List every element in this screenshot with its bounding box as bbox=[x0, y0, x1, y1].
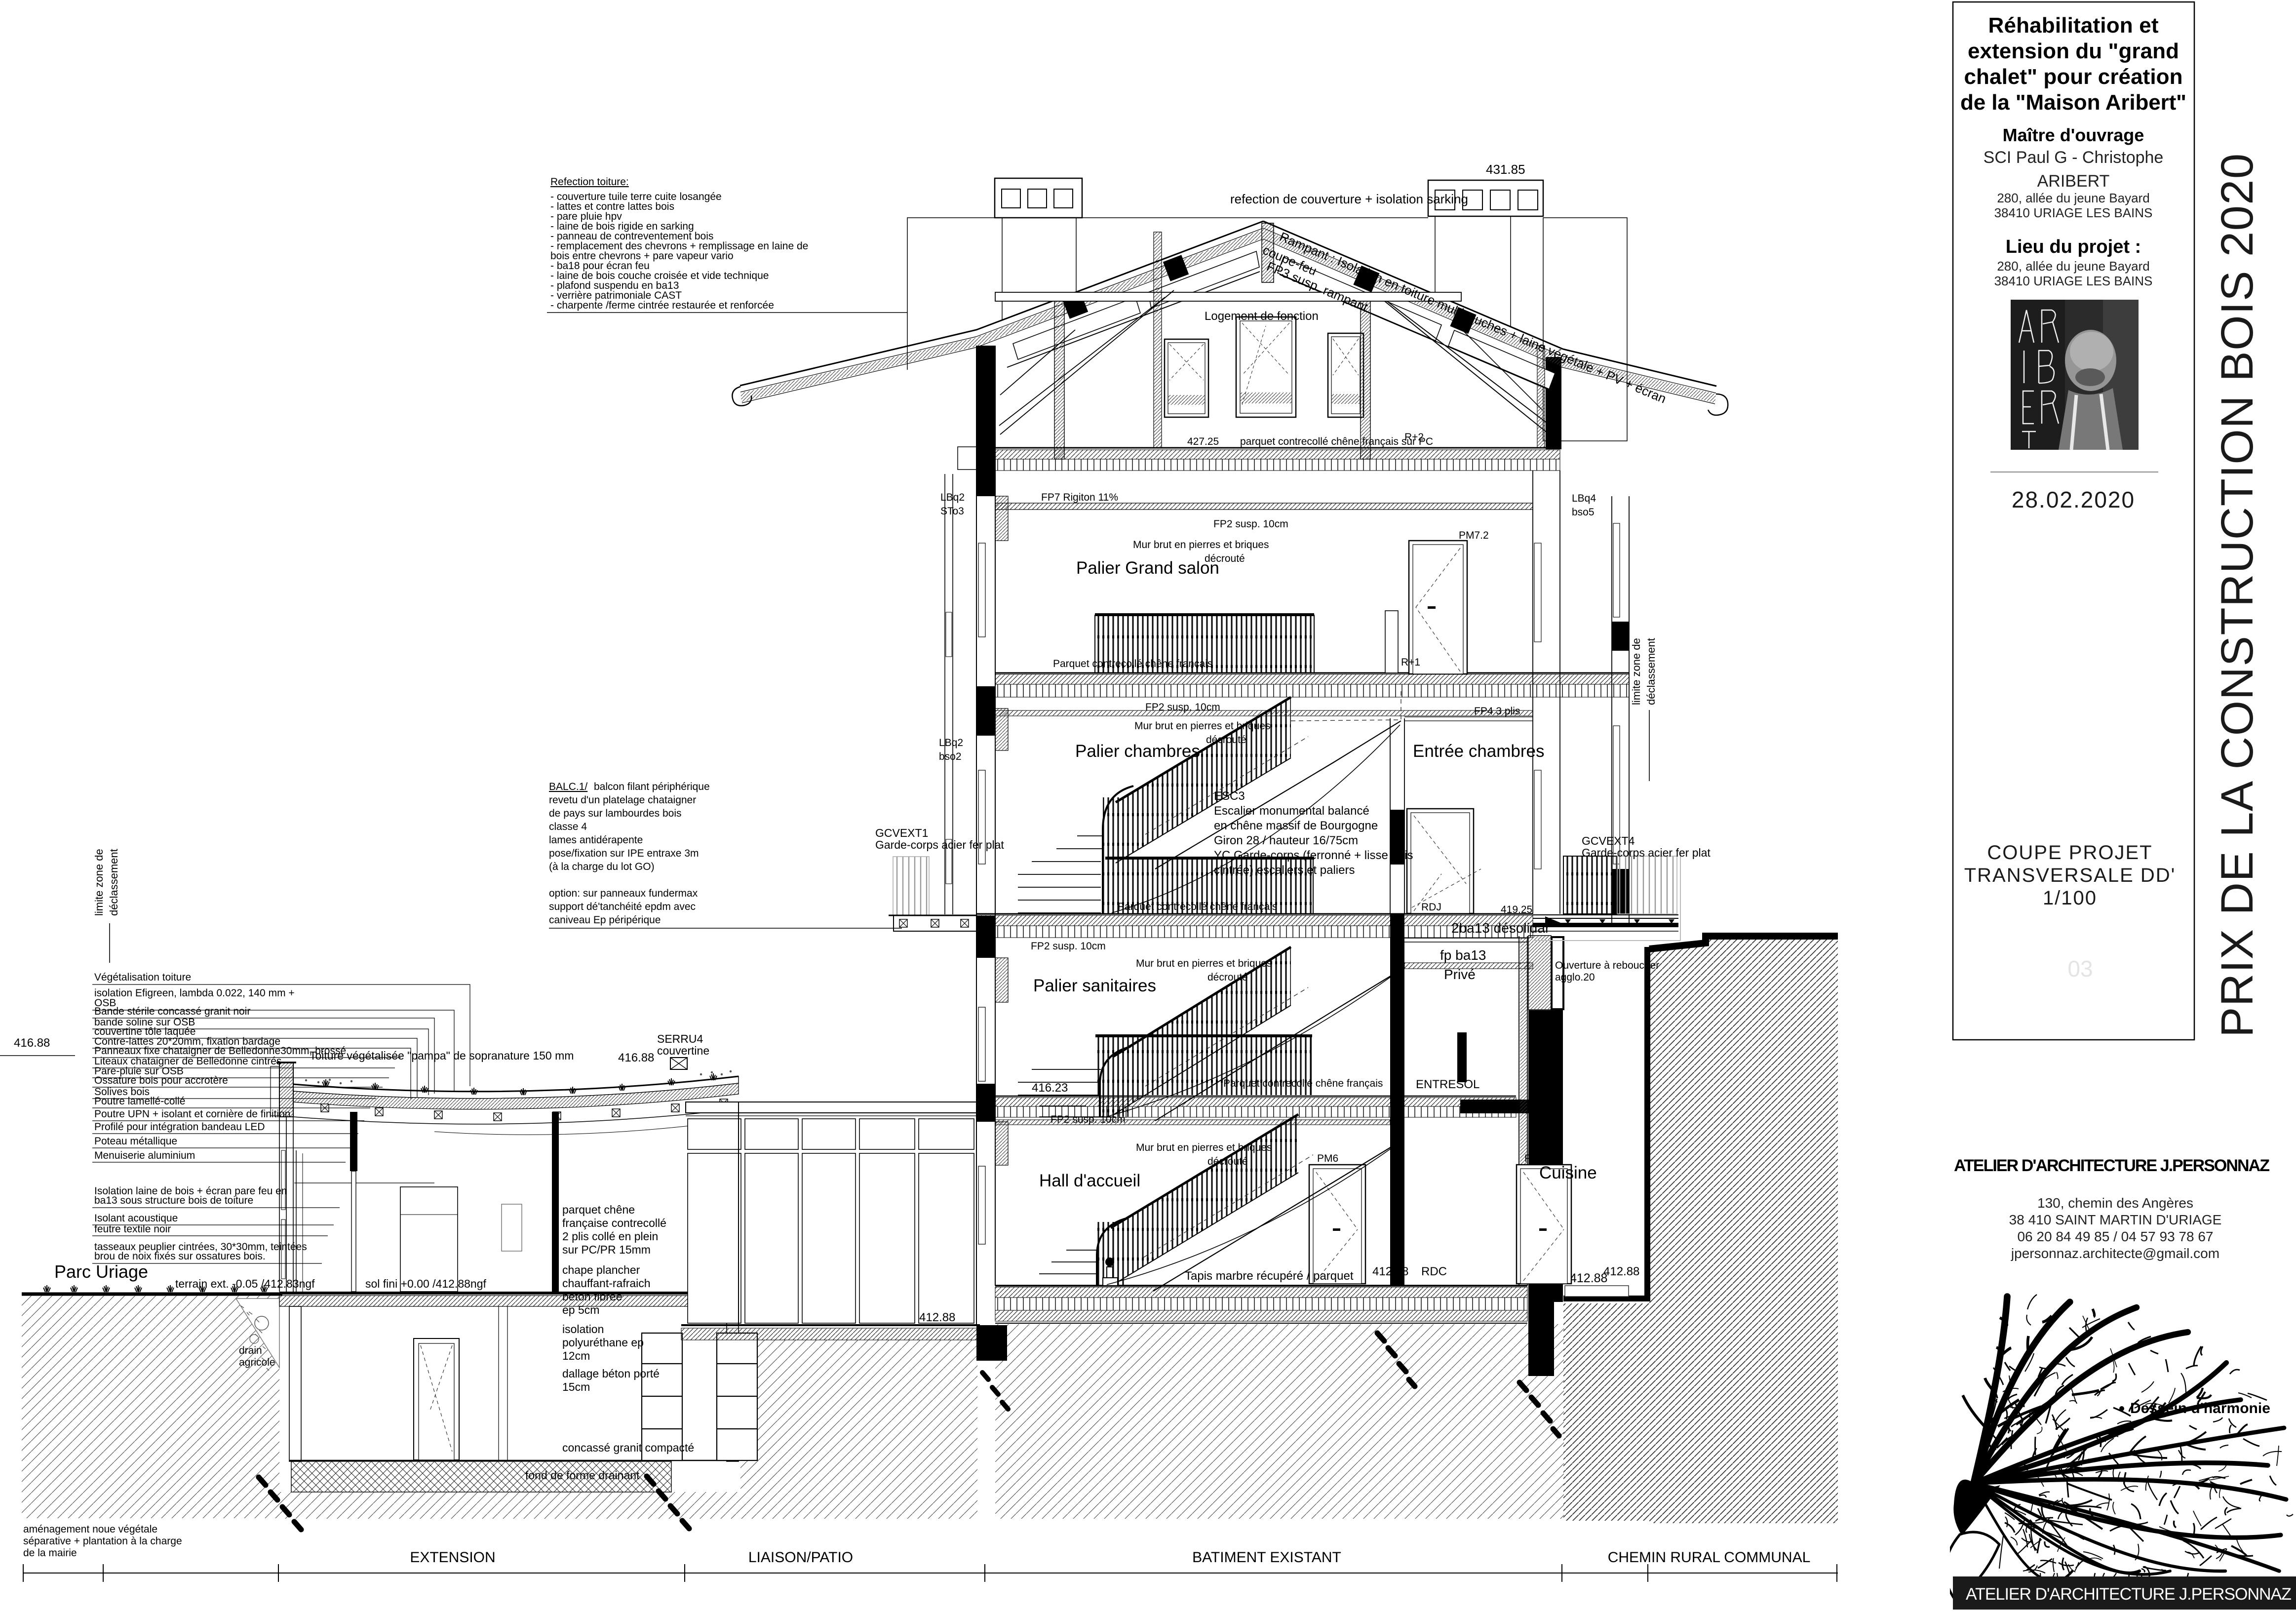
svg-text:SCI Paul G - Christophe: SCI Paul G - Christophe bbox=[1984, 148, 2164, 167]
svg-text:Parc Uriage: Parc Uriage bbox=[54, 1261, 148, 1282]
svg-text:décrouté: décrouté bbox=[1207, 972, 1248, 983]
svg-text:BALC.1/: BALC.1/ bbox=[549, 781, 587, 792]
svg-text:416.23: 416.23 bbox=[1032, 1081, 1068, 1095]
svg-text:15cm: 15cm bbox=[562, 1380, 590, 1393]
svg-text:ep 5cm: ep 5cm bbox=[562, 1303, 599, 1316]
svg-text:déclassement: déclassement bbox=[108, 849, 120, 916]
svg-text:FP2 susp. 10cm: FP2 susp. 10cm bbox=[1031, 941, 1106, 952]
svg-text:YC Garde-corps (ferronné + lis: YC Garde-corps (ferronné + lisse bois bbox=[1214, 849, 1413, 862]
svg-text:Mur brut en pierres et briques: Mur brut en pierres et briques bbox=[1136, 1142, 1272, 1153]
svg-text:Mur brut en pierres et briques: Mur brut en pierres et briques bbox=[1136, 958, 1272, 969]
svg-text:sol fini +0.00 /412.88ngf: sol fini +0.00 /412.88ngf bbox=[365, 1277, 486, 1290]
svg-text:431.85: 431.85 bbox=[1486, 162, 1525, 177]
svg-text:FP4 3 plis: FP4 3 plis bbox=[1474, 706, 1520, 717]
svg-text:décrouté: décrouté bbox=[1207, 1156, 1248, 1167]
svg-text:parquet chêne: parquet chêne bbox=[562, 1203, 635, 1216]
svg-text:concassé granit compacté: concassé granit compacté bbox=[562, 1441, 694, 1454]
svg-text:terrain ext. -0.05 /412.83ngf: terrain ext. -0.05 /412.83ngf bbox=[175, 1277, 315, 1290]
svg-text:jpersonnaz.architecte@gmail.co: jpersonnaz.architecte@gmail.com bbox=[2011, 1246, 2219, 1261]
svg-text:427.25: 427.25 bbox=[1187, 436, 1219, 447]
svg-text:revetu d'un platelage chataign: revetu d'un platelage chataigner bbox=[549, 794, 696, 806]
svg-text:RDC: RDC bbox=[1421, 1265, 1447, 1278]
svg-text:PM6: PM6 bbox=[1317, 1153, 1338, 1164]
svg-text:parquet contrecollé chêne fran: parquet contrecollé chêne français sur P… bbox=[1240, 436, 1433, 447]
svg-text:TRANSVERSALE DD': TRANSVERSALE DD' bbox=[1964, 865, 2176, 886]
svg-text:ESC3: ESC3 bbox=[1214, 789, 1245, 803]
svg-text:412.88: 412.88 bbox=[1570, 1271, 1607, 1285]
svg-text:GCVEXT1: GCVEXT1 bbox=[875, 826, 928, 839]
svg-text:cintrée) escaliers et paliers: cintrée) escaliers et paliers bbox=[1214, 864, 1355, 877]
svg-text:brou de noix fixés sur ossatur: brou de noix fixés sur ossatures bois. bbox=[94, 1251, 266, 1262]
svg-text:LBq4: LBq4 bbox=[1572, 493, 1596, 504]
svg-text:412.88: 412.88 bbox=[1603, 1265, 1639, 1278]
svg-text:2ba13 désolidar: 2ba13 désolidar bbox=[1451, 920, 1550, 936]
svg-text:béton fibrée: béton fibrée bbox=[562, 1290, 622, 1303]
svg-text:Tapis marbre récupéré / parque: Tapis marbre récupéré / parquet bbox=[1185, 1269, 1354, 1283]
svg-text:agglo.20: agglo.20 bbox=[1555, 972, 1595, 983]
svg-text:COUPE PROJET: COUPE PROJET bbox=[1987, 842, 2152, 864]
svg-text:416.88: 416.88 bbox=[14, 1036, 50, 1050]
svg-text:CHEMIN RURAL COMMUNAL: CHEMIN RURAL COMMUNAL bbox=[1608, 1549, 1811, 1566]
svg-text:GCVEXT4: GCVEXT4 bbox=[1582, 834, 1635, 847]
svg-text:R+1: R+1 bbox=[1401, 657, 1420, 668]
svg-text:Ossature bois pour accrotère: Ossature bois pour accrotère bbox=[94, 1075, 228, 1086]
svg-text:280, allée du jeune Bayard: 280, allée du jeune Bayard bbox=[1997, 191, 2149, 205]
svg-text:bso2: bso2 bbox=[939, 751, 962, 762]
svg-text:support dé'tanchéité epdm avec: support dé'tanchéité epdm avec bbox=[549, 901, 696, 912]
svg-text:(à la charge du lot GO): (à la charge du lot GO) bbox=[549, 861, 655, 872]
svg-text:isolation Efigreen, lambda 0.0: isolation Efigreen, lambda 0.022, 140 mm… bbox=[94, 987, 295, 999]
svg-text:Escalier monumental balancé: Escalier monumental balancé bbox=[1214, 804, 1369, 818]
svg-text:option: sur panneaux fundermax: option: sur panneaux fundermax bbox=[549, 888, 698, 899]
svg-text:extension du "grand: extension du "grand bbox=[1968, 39, 2179, 63]
svg-text:de la mairie: de la mairie bbox=[23, 1547, 77, 1559]
svg-text:06 20 84 49 85 / 04 57 93 78 6: 06 20 84 49 85 / 04 57 93 78 67 bbox=[2017, 1229, 2213, 1244]
svg-text:ba13 sous structure bois de to: ba13 sous structure bois de toiture bbox=[94, 1195, 253, 1206]
svg-text:isolation: isolation bbox=[562, 1323, 604, 1336]
svg-text:PM7.2: PM7.2 bbox=[1459, 530, 1489, 541]
svg-text:Isolant acoustique: Isolant acoustique bbox=[94, 1213, 178, 1224]
svg-text:Mur brut en pierres et briques: Mur brut en pierres et briques bbox=[1133, 539, 1269, 551]
svg-text:sur PC/PR 15mm: sur PC/PR 15mm bbox=[562, 1243, 651, 1256]
svg-text:chauffant-rafraich: chauffant-rafraich bbox=[562, 1277, 651, 1290]
svg-text:Poutre UPN + isolant et corniè: Poutre UPN + isolant et cornière de fini… bbox=[94, 1108, 290, 1120]
svg-text:balcon filant périphérique: balcon filant périphérique bbox=[594, 781, 710, 792]
svg-text:drain: drain bbox=[239, 1345, 262, 1356]
svg-text:limite zone de: limite zone de bbox=[1630, 638, 1642, 705]
svg-text:SERRU4: SERRU4 bbox=[657, 1032, 703, 1045]
svg-text:Dessein d'harmonie: Dessein d'harmonie bbox=[2130, 1400, 2270, 1416]
svg-text:03: 03 bbox=[2067, 956, 2093, 982]
svg-text:feutre textile noir: feutre textile noir bbox=[94, 1223, 171, 1235]
svg-text:Privé: Privé bbox=[1444, 967, 1476, 982]
svg-text:1/100: 1/100 bbox=[2043, 887, 2097, 909]
svg-text:pose/fixation sur IPE entraxe: pose/fixation sur IPE entraxe 3m bbox=[549, 848, 699, 859]
svg-text:LBq2: LBq2 bbox=[940, 492, 965, 503]
svg-text:28.02.2020: 28.02.2020 bbox=[2012, 487, 2135, 512]
svg-text:416.88: 416.88 bbox=[618, 1051, 654, 1064]
svg-text:dallage béton porté: dallage béton porté bbox=[562, 1367, 660, 1380]
svg-text:12cm: 12cm bbox=[562, 1349, 590, 1362]
svg-text:38410 URIAGE LES BAINS: 38410 URIAGE LES BAINS bbox=[1994, 274, 2153, 288]
svg-text:FP7 Rigiton 11%: FP7 Rigiton 11% bbox=[1041, 492, 1118, 503]
svg-text:STo3: STo3 bbox=[940, 506, 964, 517]
svg-text:Hall d'accueil: Hall d'accueil bbox=[1039, 1171, 1140, 1190]
svg-text:séparative + plantation à la c: séparative + plantation à la charge bbox=[23, 1535, 182, 1547]
svg-text:Giron 28 / hauteur 16/75cm: Giron 28 / hauteur 16/75cm bbox=[1214, 834, 1358, 847]
svg-text:de pays sur lambourdes bois: de pays sur lambourdes bois bbox=[549, 808, 681, 819]
svg-text:Palier Grand salon: Palier Grand salon bbox=[1076, 558, 1219, 578]
svg-text:2 plis collé en plein: 2 plis collé en plein bbox=[562, 1230, 658, 1243]
svg-text:ATELIER D'ARCHITECTURE J.PERSO: ATELIER D'ARCHITECTURE J.PERSONNAZ bbox=[1966, 1585, 2292, 1604]
svg-text:Poteau métallique: Poteau métallique bbox=[94, 1136, 177, 1147]
svg-text:Parquet contrecollé chêne fran: Parquet contrecollé chêne français bbox=[1118, 901, 1277, 912]
svg-text:Cuisine: Cuisine bbox=[1539, 1163, 1597, 1182]
svg-text:en chêne massif de Bourgogne: en chêne massif de Bourgogne bbox=[1214, 819, 1378, 832]
svg-text:130, chemin des Angères: 130, chemin des Angères bbox=[2037, 1195, 2193, 1211]
svg-text:Logement de fonction: Logement de fonction bbox=[1205, 310, 1319, 323]
svg-text:419.25: 419.25 bbox=[1501, 904, 1532, 915]
svg-text:limite zone de: limite zone de bbox=[93, 849, 105, 916]
svg-text:française contrecollé: française contrecollé bbox=[562, 1217, 666, 1229]
svg-text:Mur brut en pierres et briques: Mur brut en pierres et briques bbox=[1134, 720, 1270, 732]
svg-text:couvertine: couvertine bbox=[657, 1044, 709, 1057]
svg-text:Panneaux fixe chataigner de Be: Panneaux fixe chataigner de Belledonne30… bbox=[94, 1045, 346, 1057]
svg-text:Réhabilitation et: Réhabilitation et bbox=[1988, 13, 2159, 38]
svg-text:lames antidérapente: lames antidérapente bbox=[549, 834, 643, 846]
svg-text:décrouté: décrouté bbox=[1205, 553, 1245, 564]
svg-text:agricole: agricole bbox=[239, 1357, 275, 1368]
svg-text:38 410 SAINT MARTIN D'URIAGE: 38 410 SAINT MARTIN D'URIAGE bbox=[2009, 1212, 2222, 1227]
svg-text:Lieu du projet :: Lieu du projet : bbox=[2006, 236, 2141, 257]
svg-text:fond de forme drainant: fond de forme drainant bbox=[525, 1469, 640, 1482]
svg-text:Ouverture à reboucher: Ouverture à reboucher bbox=[1555, 960, 1659, 971]
svg-text:Menuiserie aluminium: Menuiserie aluminium bbox=[94, 1150, 195, 1161]
svg-text:BATIMENT EXISTANT: BATIMENT EXISTANT bbox=[1192, 1549, 1341, 1566]
svg-text:bso5: bso5 bbox=[1572, 507, 1595, 518]
svg-text:Bande stérile concassé granit: Bande stérile concassé granit noir bbox=[94, 1006, 250, 1017]
svg-text:ENTRESOL: ENTRESOL bbox=[1416, 1078, 1479, 1091]
svg-text:Palier chambres: Palier chambres bbox=[1075, 742, 1200, 761]
svg-text:ARIBERT: ARIBERT bbox=[2037, 172, 2110, 191]
svg-text:PM2: PM2 bbox=[1524, 1153, 1546, 1164]
svg-text:déclassement: déclassement bbox=[1645, 638, 1657, 705]
svg-text:Entrée chambres: Entrée chambres bbox=[1413, 742, 1545, 761]
svg-text:Parquet contrecollé chêne fran: Parquet contrecollé chêne français bbox=[1053, 658, 1212, 669]
svg-text:LIAISON/PATIO: LIAISON/PATIO bbox=[748, 1549, 853, 1566]
svg-text:412.88: 412.88 bbox=[1372, 1265, 1408, 1278]
svg-text:FP2 susp. 10cm: FP2 susp. 10cm bbox=[1051, 1114, 1126, 1125]
svg-text:- charpente /ferme cintrée res: - charpente /ferme cintrée restaurée et … bbox=[550, 300, 774, 311]
svg-text:PRIX DE LA CONSTRUCTION BOIS 2: PRIX DE LA CONSTRUCTION BOIS 2020 bbox=[2212, 154, 2262, 1037]
svg-text:de la "Maison Aribert": de la "Maison Aribert" bbox=[1960, 90, 2186, 115]
svg-text:Garde-corps acier fer plat: Garde-corps acier fer plat bbox=[1582, 846, 1711, 859]
svg-text:EXTENSION: EXTENSION bbox=[410, 1549, 495, 1566]
svg-text:38410 URIAGE LES BAINS: 38410 URIAGE LES BAINS bbox=[1994, 205, 2153, 220]
svg-text:classe 4: classe 4 bbox=[549, 821, 587, 832]
svg-text:FP2 susp. 10cm: FP2 susp. 10cm bbox=[1213, 518, 1288, 530]
svg-text:ATELIER D'ARCHITECTURE J.PERSO: ATELIER D'ARCHITECTURE J.PERSONNAZ bbox=[1954, 1156, 2270, 1175]
svg-text:chape plancher: chape plancher bbox=[562, 1263, 640, 1276]
svg-text:aménagement noue végétale: aménagement noue végétale bbox=[23, 1524, 157, 1535]
svg-text:décrouté: décrouté bbox=[1206, 734, 1246, 746]
svg-text:412.88: 412.88 bbox=[919, 1311, 955, 1324]
svg-text:refection de couverture + isol: refection de couverture + isolation sark… bbox=[1230, 192, 1468, 206]
svg-text:Toiture végétalisée "pampa" de: Toiture végétalisée "pampa" de sopranatu… bbox=[310, 1049, 574, 1062]
svg-text:fp ba13: fp ba13 bbox=[1440, 947, 1486, 963]
svg-text:Refection toiture:: Refection toiture: bbox=[550, 176, 629, 188]
svg-text:Palier sanitaires: Palier sanitaires bbox=[1033, 976, 1156, 995]
svg-text:Garde-corps acier fer plat: Garde-corps acier fer plat bbox=[875, 838, 1004, 851]
svg-text:FP2 susp. 10cm: FP2 susp. 10cm bbox=[1145, 702, 1220, 713]
svg-text:280, allée du jeune Bayard: 280, allée du jeune Bayard bbox=[1997, 259, 2149, 274]
svg-text:Végétalisation toiture: Végétalisation toiture bbox=[94, 972, 191, 983]
svg-text:chalet" pour création: chalet" pour création bbox=[1964, 65, 2183, 89]
svg-text:polyuréthane ep: polyuréthane ep bbox=[562, 1336, 644, 1349]
svg-text:Poutre lamellé-collé: Poutre lamellé-collé bbox=[94, 1096, 185, 1107]
svg-text:caniveau Ep péripérique: caniveau Ep péripérique bbox=[549, 914, 661, 926]
svg-text:LBq2: LBq2 bbox=[939, 737, 963, 748]
svg-text:Parquet contrecollé chêne fran: Parquet contrecollé chêne français bbox=[1223, 1078, 1383, 1089]
svg-text:Maître d'ouvrage: Maître d'ouvrage bbox=[2003, 125, 2144, 145]
svg-text:RDJ: RDJ bbox=[1421, 902, 1441, 913]
svg-text:Profilé pour intégration bande: Profilé pour intégration bandeau LED bbox=[94, 1121, 265, 1133]
